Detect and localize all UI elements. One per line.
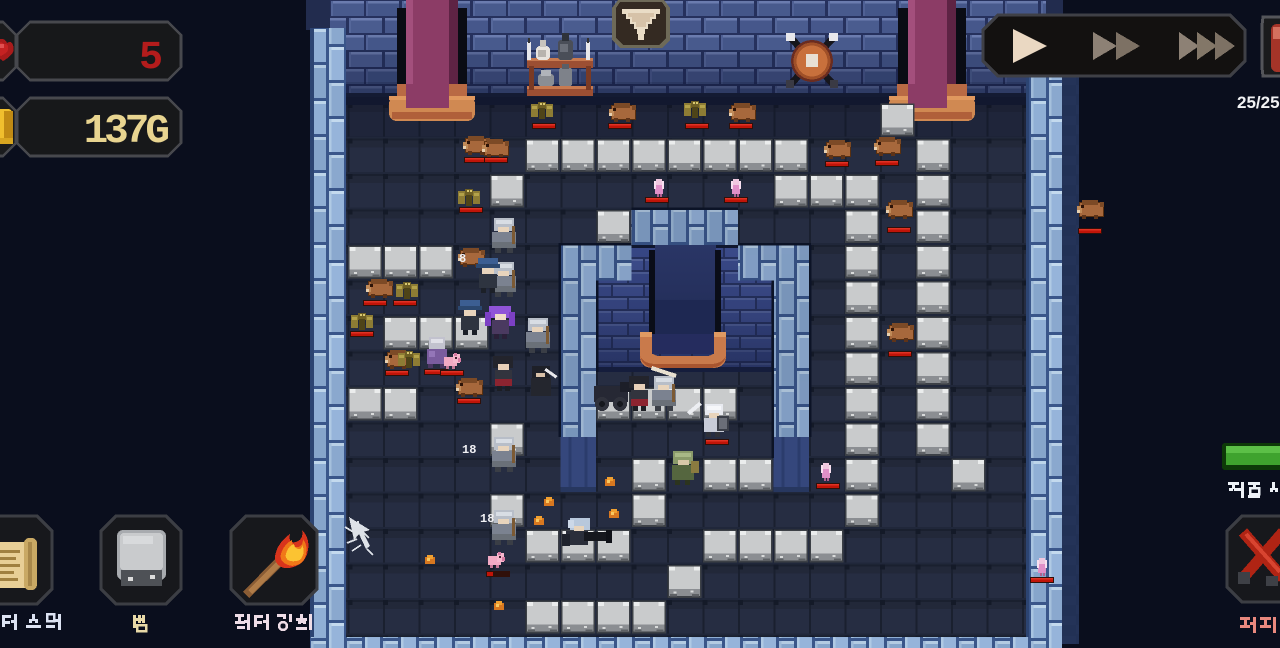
- svg-text:8: 8: [459, 252, 466, 266]
- svg-text:18: 18: [480, 512, 494, 526]
- svg-text:25/25: 25/25: [1237, 93, 1280, 112]
- svg-text:18: 18: [462, 443, 476, 457]
- svg-text:137G: 137G: [84, 109, 169, 155]
- svg-text:5: 5: [139, 36, 163, 81]
